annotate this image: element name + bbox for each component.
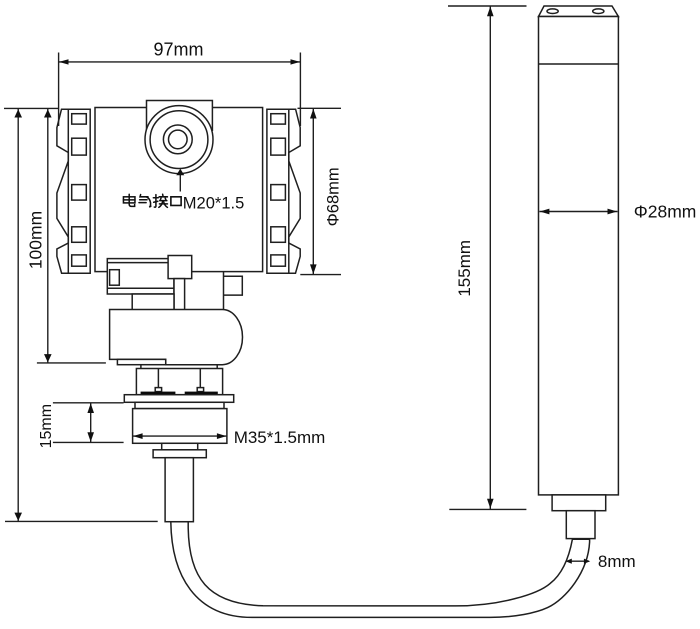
svg-text:Φ68mm: Φ68mm bbox=[324, 167, 342, 226]
svg-text:155mm: 155mm bbox=[455, 240, 474, 297]
svg-text:M35*1.5mm: M35*1.5mm bbox=[234, 428, 326, 447]
svg-text:M20*1.5: M20*1.5 bbox=[183, 195, 244, 213]
svg-text:15mm: 15mm bbox=[38, 404, 55, 448]
svg-text:100mm: 100mm bbox=[25, 211, 45, 269]
svg-text:97mm: 97mm bbox=[153, 40, 203, 60]
svg-text:8mm: 8mm bbox=[598, 552, 636, 571]
svg-text:Φ28mm: Φ28mm bbox=[634, 202, 697, 222]
